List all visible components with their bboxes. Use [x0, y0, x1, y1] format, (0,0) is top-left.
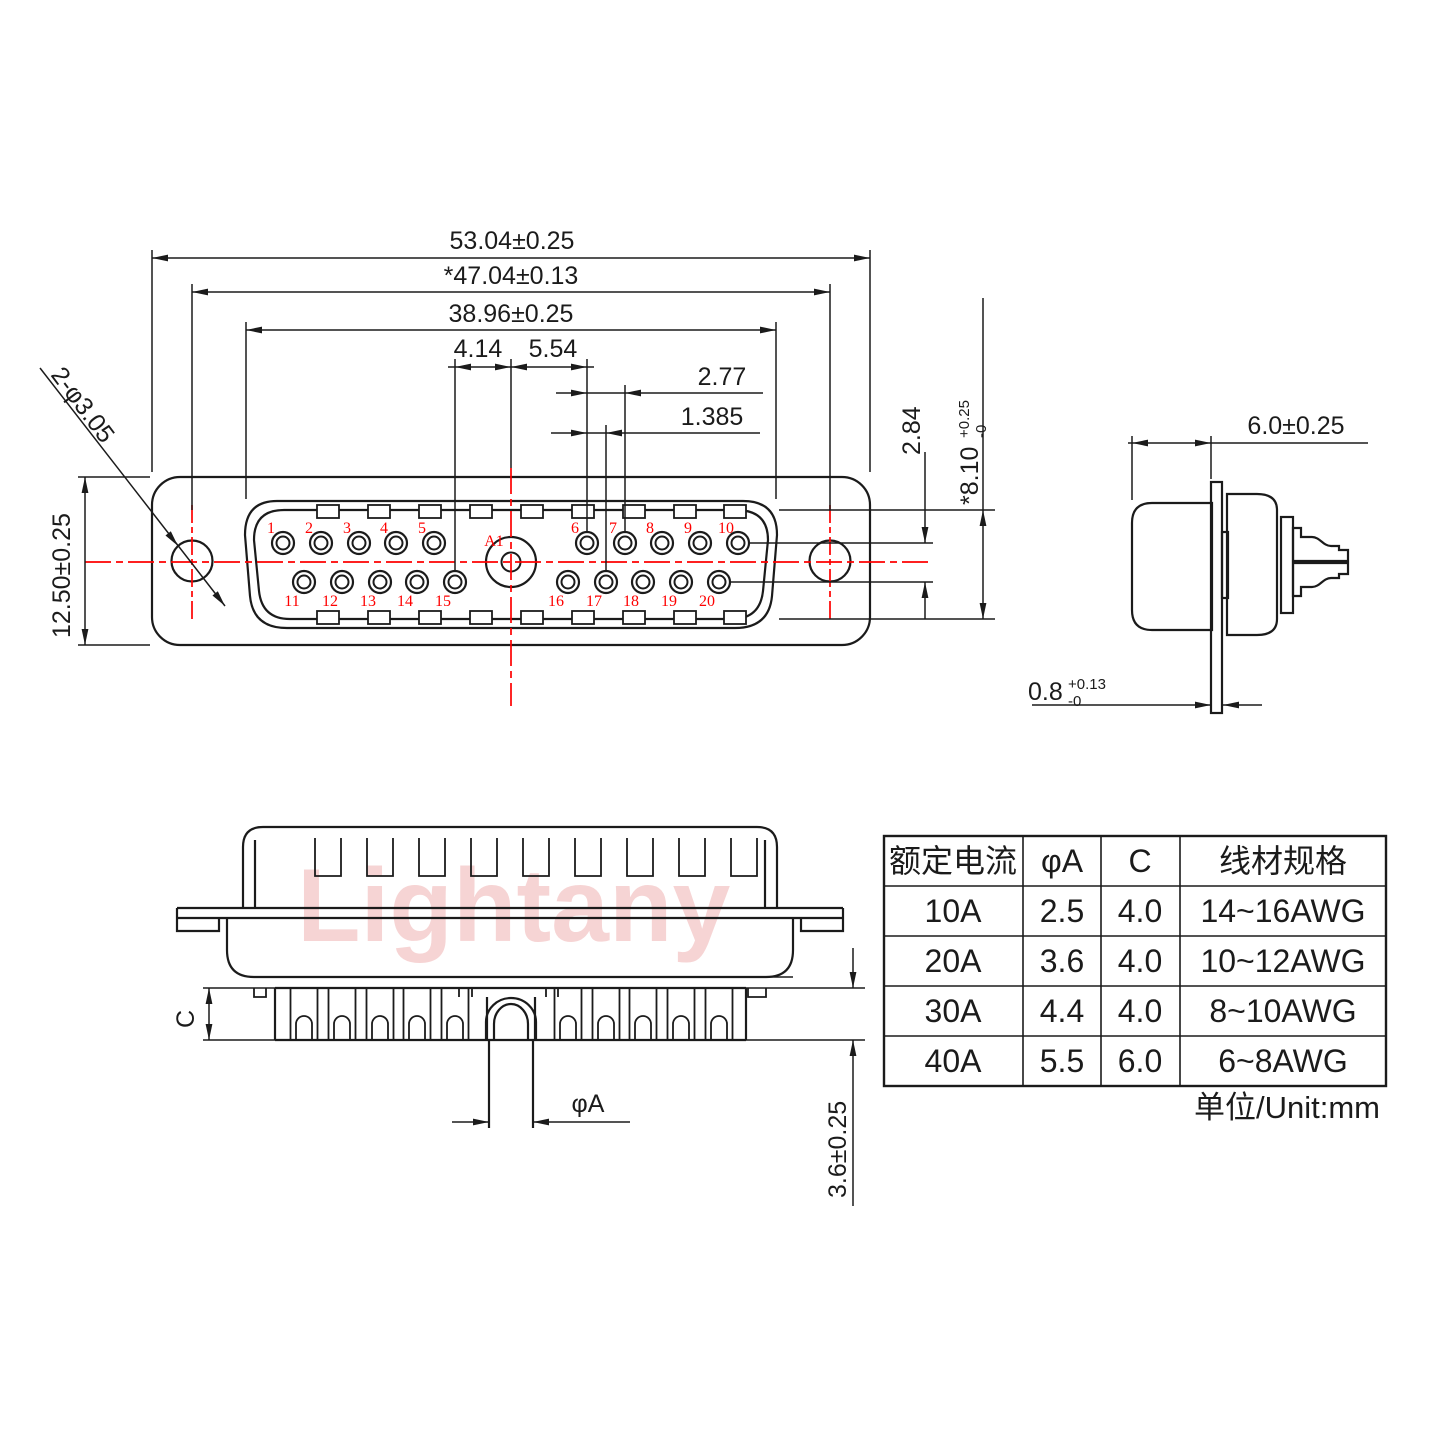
- solder-cup-u: [447, 1016, 463, 1040]
- table-cell: 14~16AWG: [1200, 893, 1365, 929]
- side-dim-lines: [1032, 436, 1368, 705]
- pin-label: 10: [718, 520, 734, 537]
- dim-body-height: 12.50±0.25: [48, 513, 76, 638]
- pin-label: 1: [267, 520, 275, 537]
- cup-row-frame: [275, 988, 746, 1040]
- table-cell: 5.5: [1040, 1043, 1084, 1079]
- arrowhead: [850, 972, 857, 988]
- pin-contact-inner: [713, 576, 726, 589]
- shell-notch-bottom: [317, 611, 339, 624]
- arrowhead: [533, 1119, 549, 1126]
- pin-contact-inner: [336, 576, 349, 589]
- center-pin-tail: [489, 1040, 533, 1128]
- pin-contact-inner: [694, 537, 707, 550]
- dim-overall-width: 53.04±0.25: [450, 227, 575, 255]
- pin-label: 20: [699, 593, 715, 610]
- dim-line-body-height: [78, 477, 150, 645]
- arrowhead: [571, 390, 587, 397]
- dim-shell-height-group: *8.10 +0.25 -0: [956, 400, 990, 505]
- center-cup-arch-inner: [494, 1004, 528, 1040]
- solder-cup-walls: [291, 988, 318, 1040]
- table-cell: 8~10AWG: [1209, 993, 1356, 1029]
- solder-cup-u: [711, 1016, 727, 1040]
- arrowhead: [980, 603, 987, 619]
- dim-row-spacing-group: 2.84: [898, 406, 926, 455]
- pin-label: 13: [360, 593, 376, 610]
- dim-mounting-holes: 2-φ3.05: [45, 362, 120, 448]
- pin-contact-inner: [581, 537, 594, 550]
- pin-contact-inner: [298, 576, 311, 589]
- pin-contact-inner: [374, 576, 387, 589]
- dim-shell-width: 38.96±0.25: [449, 300, 574, 328]
- dim-cup-depth: C: [172, 1010, 200, 1028]
- table-cell: 6.0: [1118, 1043, 1162, 1079]
- table-row: 30A 4.4 4.0 8~10AWG: [925, 993, 1357, 1029]
- table-cell: 4.0: [1118, 893, 1162, 929]
- pin-contact-inner: [411, 576, 424, 589]
- side-terminal-lower: [1293, 563, 1348, 596]
- arrowhead: [980, 510, 987, 526]
- arrowhead: [1195, 440, 1211, 447]
- shell-notch-bottom: [368, 611, 390, 624]
- side-shroud: [1132, 503, 1212, 630]
- dim-pin-pitch: 2.77: [698, 363, 747, 391]
- pin-label: 2: [305, 520, 313, 537]
- pin-contact-inner: [732, 537, 745, 550]
- pin-label: 19: [661, 593, 677, 610]
- pin-contact-inner: [619, 537, 632, 550]
- table-header-wire: 线材规格: [1219, 843, 1347, 879]
- solder-cup-u: [673, 1016, 689, 1040]
- dim-a1-to-pin6: 5.54: [529, 335, 578, 363]
- dim-hole-pitch: *47.04±0.13: [444, 262, 579, 290]
- solder-cup-u: [372, 1016, 388, 1040]
- arrowhead: [206, 1024, 213, 1040]
- pin-label: 17: [586, 593, 602, 610]
- arrowhead: [82, 629, 89, 645]
- table-cell: 6~8AWG: [1218, 1043, 1348, 1079]
- arrowhead: [192, 289, 208, 296]
- arrowhead: [152, 255, 168, 262]
- pin-contact-inner: [315, 537, 328, 550]
- table-row: 20A 3.6 4.0 10~12AWG: [925, 943, 1366, 979]
- shell-notch-top: [674, 505, 696, 518]
- side-terminal-upper: [1293, 528, 1348, 561]
- side-step-block: [1281, 517, 1293, 613]
- side-rear-body: [1227, 494, 1277, 635]
- pin-contact-inner: [562, 576, 575, 589]
- pin-contact-inner: [277, 537, 290, 550]
- arrowhead: [760, 327, 776, 334]
- dim-shell-height-minus: -0: [973, 425, 990, 438]
- dim-a1-to-pin15: 4.14: [454, 335, 503, 363]
- table-cell: 4.4: [1040, 993, 1084, 1029]
- table-cell: 2.5: [1040, 893, 1084, 929]
- table-row: 40A 5.5 6.0 6~8AWG: [925, 1043, 1348, 1079]
- dim-line-shroud-depth: [1128, 436, 1368, 500]
- arrowhead: [206, 988, 213, 1004]
- shell-notch-top: [470, 505, 492, 518]
- pin-label: 3: [343, 520, 351, 537]
- shell-notch-top: [368, 505, 390, 518]
- solder-cup-u: [635, 1016, 651, 1040]
- table-header-c: C: [1128, 843, 1151, 879]
- arrowhead: [246, 327, 262, 334]
- dim-body-height-group: 12.50±0.25: [48, 513, 76, 638]
- pin-contact-inner: [353, 537, 366, 550]
- arrowhead: [922, 582, 929, 598]
- pin-label: 15: [435, 593, 451, 610]
- pin-label: 4: [380, 520, 388, 537]
- solder-cup-walls: [630, 988, 657, 1040]
- side-view: [1132, 482, 1348, 713]
- pin-label: 6: [571, 520, 579, 537]
- table-cell: 30A: [925, 993, 983, 1029]
- shell-notch-bottom: [419, 611, 441, 624]
- arrowhead: [571, 364, 587, 371]
- dim-flange-thickness-minus: -0: [1068, 693, 1081, 710]
- shell-notch-bottom: [623, 611, 645, 624]
- watermark-text-bottom: Lightany: [297, 848, 730, 964]
- table-cell: 20A: [925, 943, 983, 979]
- shell-notch-top: [724, 505, 746, 518]
- pin-label: 11: [284, 593, 299, 610]
- arrowhead: [1223, 702, 1239, 709]
- arrowhead: [1132, 440, 1148, 447]
- arrowhead: [1195, 702, 1211, 709]
- pin-contact-inner: [637, 576, 650, 589]
- dim-tail-length-group: 3.6±0.25: [824, 1101, 852, 1198]
- table-cell: 3.6: [1040, 943, 1084, 979]
- shell-notch-bottom: [572, 611, 594, 624]
- shell-notch-top: [317, 505, 339, 518]
- pin-label: 8: [646, 520, 654, 537]
- arrowhead: [606, 430, 622, 437]
- pin-label: 7: [609, 520, 617, 537]
- shell-notch-top: [419, 505, 441, 518]
- arrowhead: [511, 364, 527, 371]
- pin-contact-inner: [390, 537, 403, 550]
- dim-pin-diameter: φA: [572, 1090, 605, 1118]
- shroud-slot: [731, 838, 757, 876]
- dim-flange-thickness-base: 0.8: [1028, 678, 1063, 706]
- table-cell: 4.0: [1118, 993, 1162, 1029]
- pin-contact-inner: [600, 576, 613, 589]
- table-cell: 40A: [925, 1043, 983, 1079]
- arrowhead: [850, 1040, 857, 1056]
- dim-mounting-holes-group: 2-φ3.05: [45, 362, 120, 448]
- dim-tail-length: 3.6±0.25: [824, 1101, 852, 1198]
- solder-cup-walls: [404, 988, 431, 1040]
- arrowhead: [455, 364, 471, 371]
- table-cell: 10~12AWG: [1200, 943, 1365, 979]
- dim-row-spacing: 2.84: [898, 406, 926, 455]
- unit-note: 单位/Unit:mm: [1194, 1090, 1380, 1125]
- solder-cup-walls: [442, 988, 469, 1040]
- pin-label: 18: [623, 593, 639, 610]
- dim-shell-height-plus: +0.25: [956, 400, 973, 438]
- solder-cup-walls: [668, 988, 695, 1040]
- solder-cup-u: [409, 1016, 425, 1040]
- pin-label: 16: [548, 593, 564, 610]
- table-cell: 10A: [925, 893, 983, 929]
- table-header-dia: φA: [1041, 843, 1084, 879]
- arrowhead: [814, 289, 830, 296]
- shell-notch-bottom: [724, 611, 746, 624]
- dim-flange-thickness-plus: +0.13: [1068, 676, 1106, 693]
- pin-contact-inner: [656, 537, 669, 550]
- pin-label: 9: [684, 520, 692, 537]
- arrowhead: [82, 477, 89, 493]
- shell-notch-top: [521, 505, 543, 518]
- dim-row-stagger: 1.385: [681, 403, 744, 431]
- pin-label: 12: [322, 593, 338, 610]
- shell-notch-top: [572, 505, 594, 518]
- solder-cup-u: [296, 1016, 312, 1040]
- center-cup-shoulder: [459, 988, 558, 997]
- pin-label: 14: [397, 593, 413, 610]
- solder-cup-walls: [706, 988, 733, 1040]
- arrowhead: [571, 430, 587, 437]
- arrowhead: [922, 527, 929, 543]
- arrowhead: [854, 255, 870, 262]
- cad-drawing: Lightany Lightany 1234567891011121314151…: [0, 0, 1440, 1440]
- table-row: 10A 2.5 4.0 14~16AWG: [925, 893, 1366, 929]
- dim-shroud-depth: 6.0±0.25: [1247, 412, 1344, 440]
- bottom-body-notches: [254, 988, 766, 997]
- shell-notch-top: [623, 505, 645, 518]
- arrowhead: [625, 390, 641, 397]
- table-cell: 4.0: [1118, 943, 1162, 979]
- shell-notch-bottom: [470, 611, 492, 624]
- spec-table: 额定电流 φA C 线材规格 10A 2.5 4.0 14~16AWG 20A …: [884, 836, 1386, 1125]
- solder-cup-walls: [367, 988, 394, 1040]
- pin-contact-inner: [675, 576, 688, 589]
- solder-cup-walls: [329, 988, 356, 1040]
- pin-contact-inner: [449, 576, 462, 589]
- dim-cup-depth-group: C: [172, 1010, 200, 1028]
- solder-cup-row: [291, 988, 733, 1040]
- solder-cup-u: [598, 1016, 614, 1040]
- shell-notch-bottom: [521, 611, 543, 624]
- solder-cup-u: [334, 1016, 350, 1040]
- pin-contact-inner: [428, 537, 441, 550]
- pin-label-a1: A1: [484, 533, 504, 550]
- dim-shell-height-base: *8.10: [956, 447, 984, 505]
- drawing-sheet: Lightany Lightany 1234567891011121314151…: [0, 0, 1440, 1440]
- arrowhead: [473, 1119, 489, 1126]
- arrowhead: [495, 364, 511, 371]
- table-header-current: 额定电流: [889, 843, 1017, 879]
- shell-notch-bottom: [674, 611, 696, 624]
- pin-label: 5: [418, 520, 426, 537]
- solder-cup-walls: [593, 988, 620, 1040]
- solder-cup-u: [560, 1016, 576, 1040]
